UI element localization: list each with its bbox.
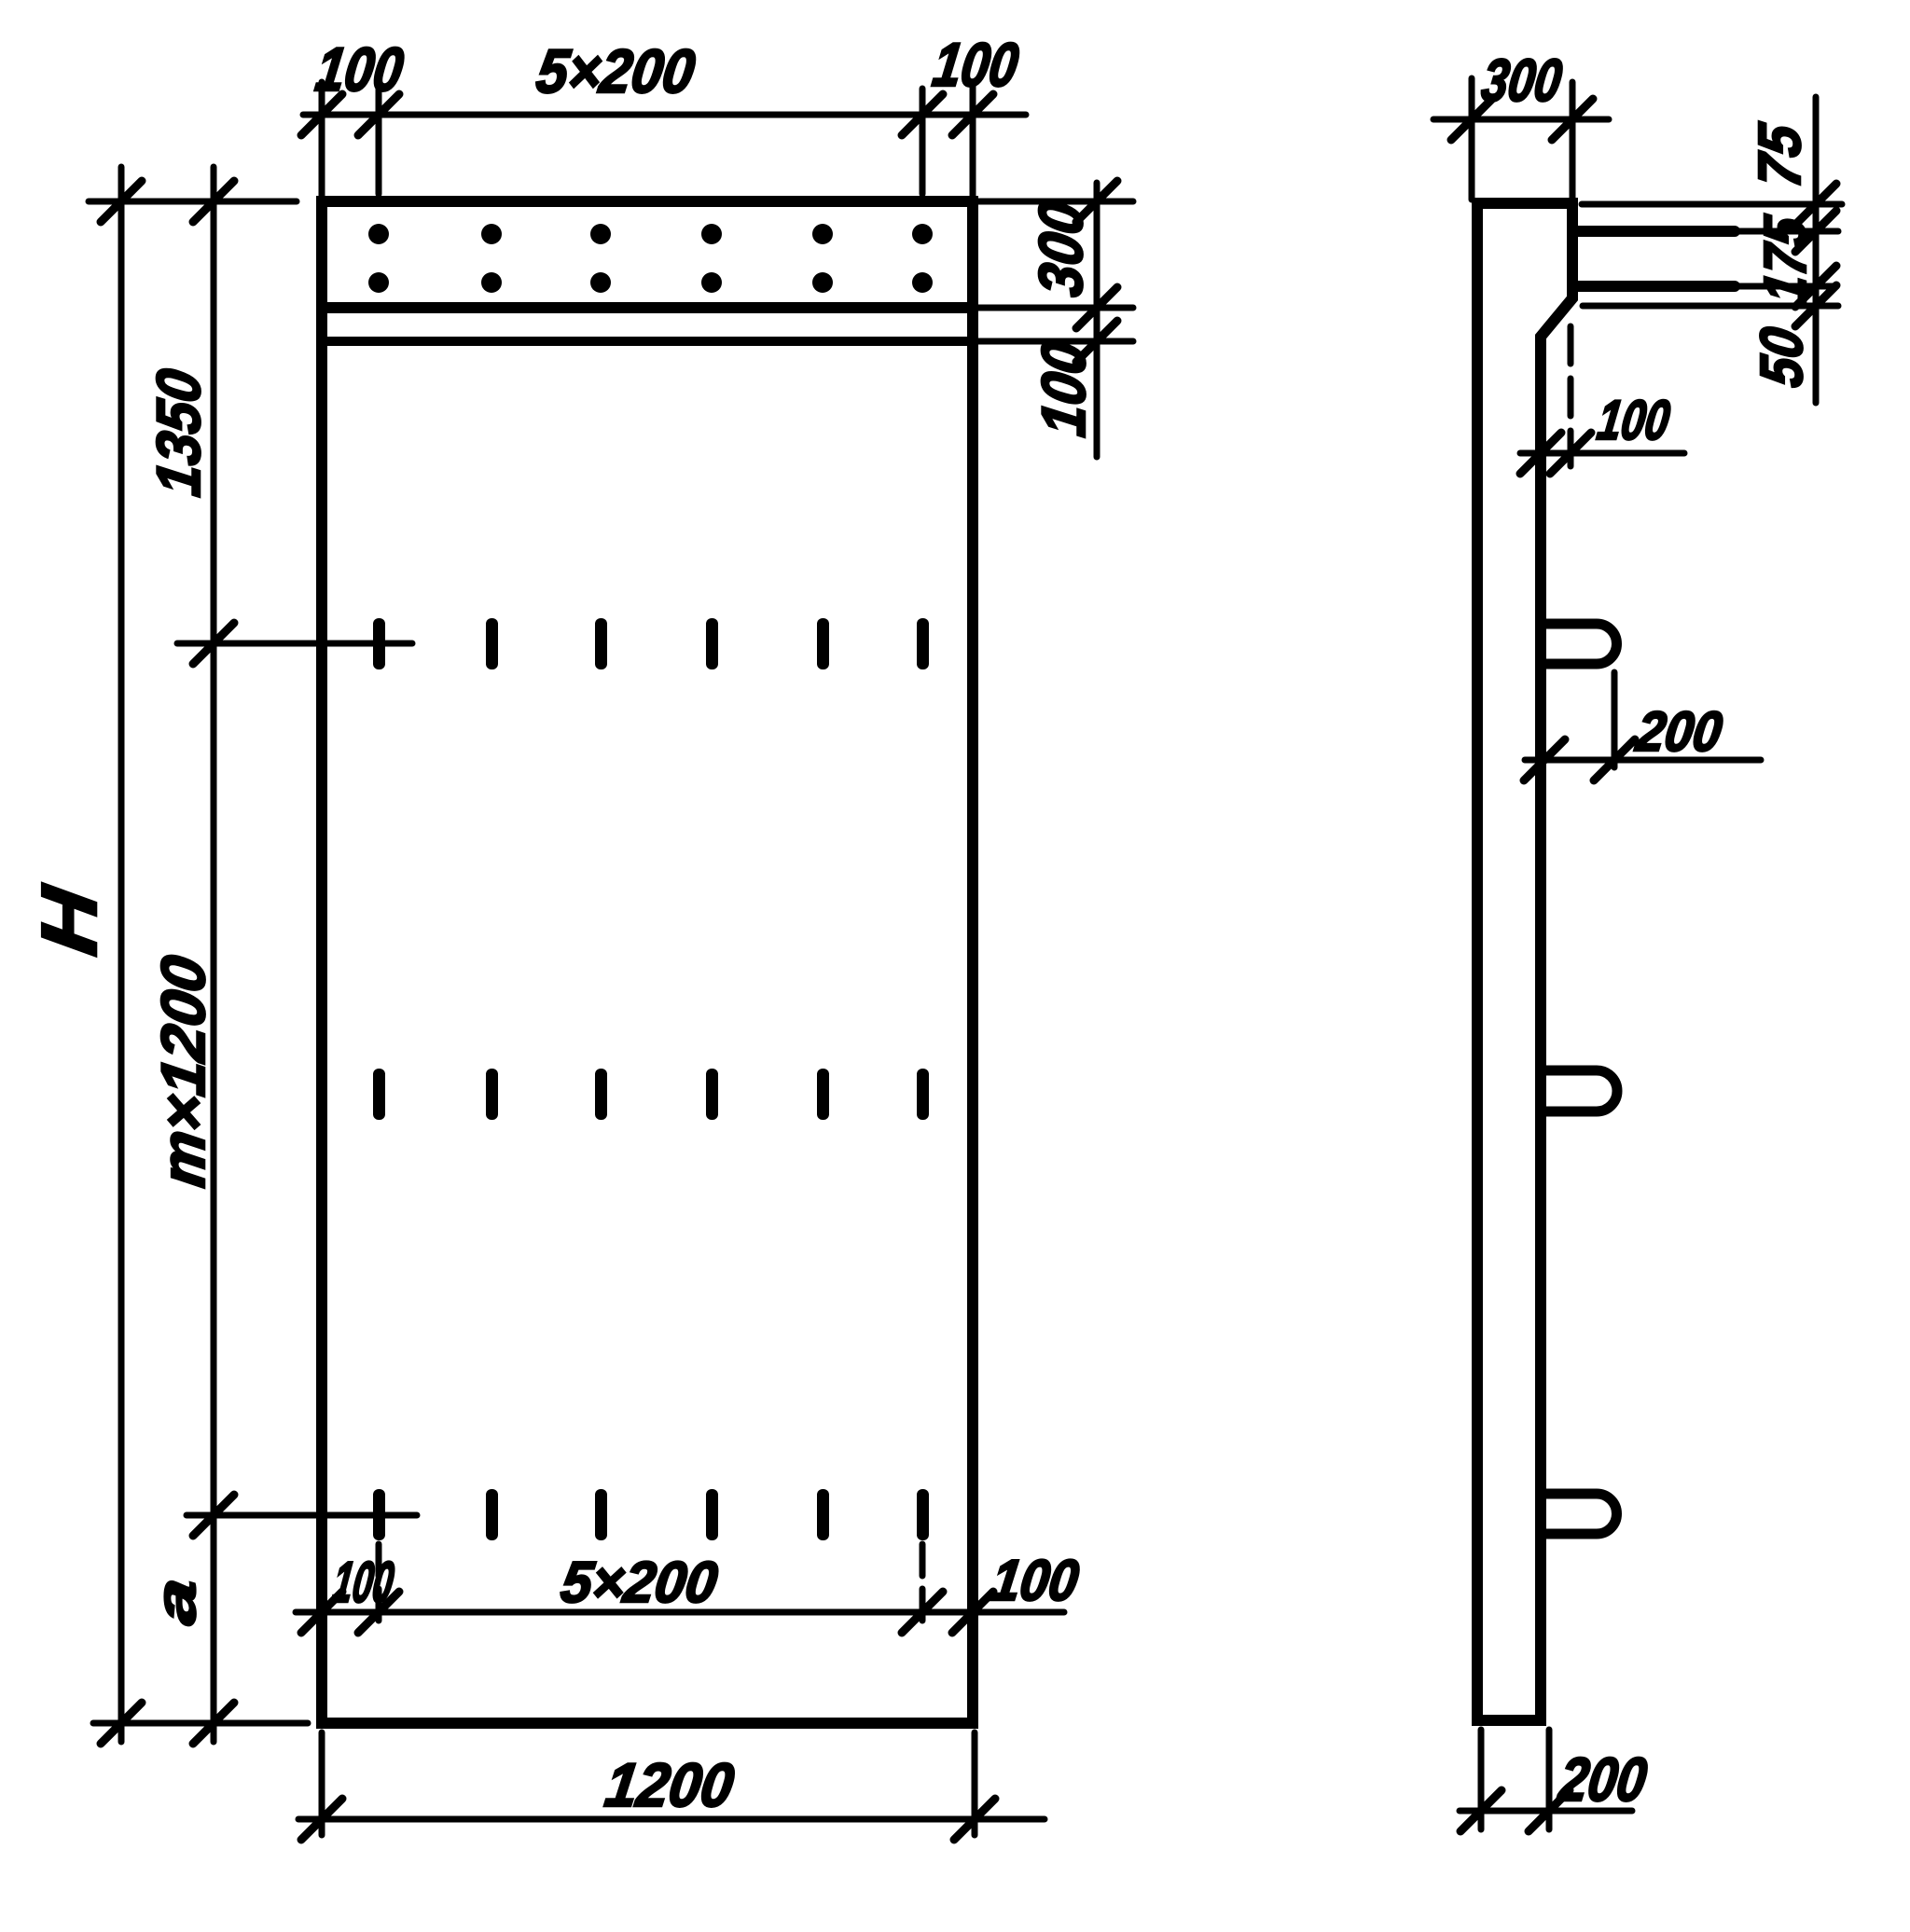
svg-text:100: 100 — [988, 1549, 1083, 1613]
svg-text:200: 200 — [1554, 1746, 1651, 1815]
svg-text:100: 100 — [329, 1551, 398, 1615]
svg-text:5×200: 5×200 — [533, 37, 699, 106]
svg-text:H: H — [25, 880, 113, 959]
svg-text:300: 300 — [1027, 198, 1096, 300]
svg-text:100: 100 — [311, 35, 407, 104]
svg-text:5×200: 5×200 — [558, 1551, 722, 1615]
svg-text:1200: 1200 — [602, 1751, 738, 1820]
svg-text:200: 200 — [1632, 699, 1725, 763]
svg-text:300: 300 — [1478, 47, 1566, 114]
svg-text:m×1200: m×1200 — [149, 952, 218, 1191]
svg-text:50: 50 — [1748, 324, 1815, 391]
svg-text:100: 100 — [1030, 338, 1099, 440]
svg-text:100: 100 — [929, 31, 1022, 100]
svg-text:1350: 1350 — [145, 366, 214, 500]
svg-text:75: 75 — [1746, 119, 1813, 191]
svg-text:a: a — [144, 1574, 207, 1628]
svg-text:175: 175 — [1751, 212, 1819, 308]
svg-text:100: 100 — [1594, 388, 1674, 451]
